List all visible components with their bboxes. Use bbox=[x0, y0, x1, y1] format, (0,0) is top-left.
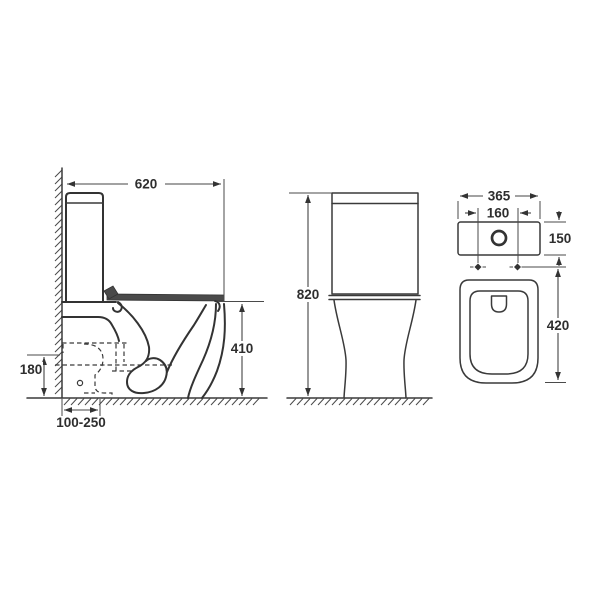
fixing-screw-circle bbox=[77, 380, 82, 385]
dim-160-label: 160 bbox=[487, 206, 510, 221]
drawing-svg: 620 410 180 100-250 bbox=[0, 0, 600, 600]
dim-100-250-label: 100-250 bbox=[56, 415, 106, 430]
top-view: 365 160 150 420 bbox=[458, 189, 573, 384]
dim-365-label: 365 bbox=[488, 189, 511, 204]
side-view: 620 410 180 100-250 bbox=[18, 168, 267, 430]
dim-100-250: 100-250 bbox=[56, 399, 106, 430]
dim-620-label: 620 bbox=[135, 177, 158, 192]
front-base-left bbox=[334, 300, 346, 398]
fixing-holes bbox=[470, 264, 566, 271]
floor-hatching-side bbox=[64, 399, 259, 406]
floor-hatching-front bbox=[290, 399, 429, 406]
front-base-right bbox=[404, 300, 416, 398]
front-cistern bbox=[332, 193, 418, 294]
dim-160: 160 bbox=[465, 206, 531, 221]
dim-150: 150 bbox=[544, 211, 571, 266]
pan-front-outer bbox=[202, 304, 225, 398]
rim-lip bbox=[62, 317, 119, 341]
dim-820: 820 bbox=[289, 193, 332, 396]
technical-drawing: 620 410 180 100-250 bbox=[0, 0, 600, 600]
dim-180: 180 bbox=[18, 355, 60, 396]
dim-150-label: 150 bbox=[549, 231, 572, 246]
flush-button bbox=[492, 231, 506, 245]
seat-profile bbox=[107, 294, 224, 301]
dim-820-label: 820 bbox=[297, 287, 320, 302]
dim-180-label: 180 bbox=[20, 362, 43, 377]
front-view: 820 bbox=[287, 193, 432, 405]
trap-upsweep bbox=[167, 305, 206, 372]
dim-420-label: 420 bbox=[547, 318, 570, 333]
wall-hatching bbox=[55, 170, 62, 394]
dim-420: 420 bbox=[543, 269, 573, 383]
front-seat-lines bbox=[329, 296, 420, 300]
dim-410-label: 410 bbox=[231, 341, 254, 356]
cistern-side bbox=[66, 193, 103, 301]
bowl-trap-curve bbox=[118, 303, 167, 393]
